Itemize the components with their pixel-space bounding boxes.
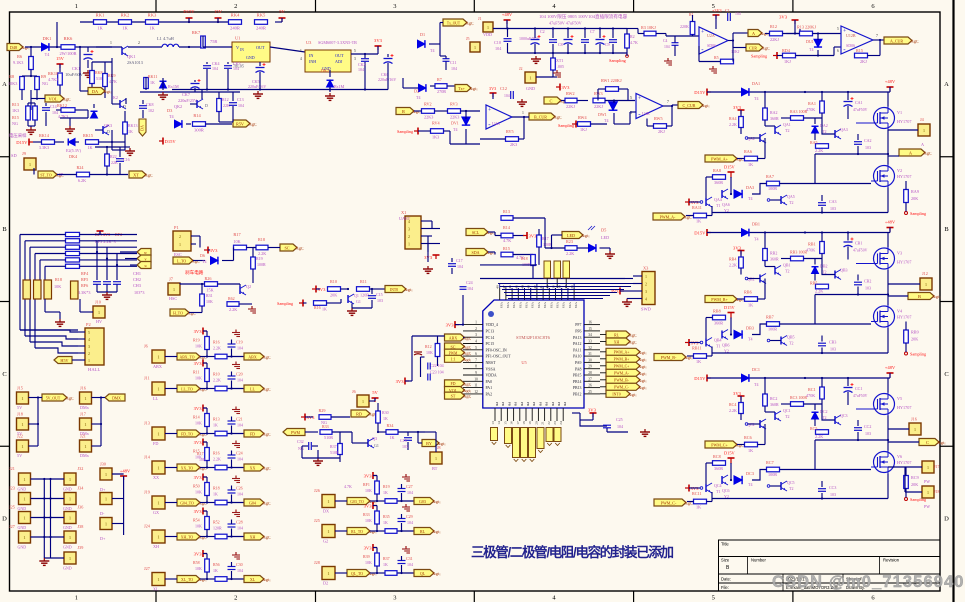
svg-text:360R: 360R [714, 466, 723, 471]
svg-text:QA3: QA3 [840, 127, 848, 132]
svg-text:8: 8 [475, 365, 477, 369]
svg-text:R14: R14 [193, 113, 201, 118]
svg-text:+48V: +48V [885, 365, 896, 370]
svg-text:3V3: 3V3 [194, 475, 203, 480]
svg-text:C16: C16 [123, 157, 130, 162]
svg-text:1: 1 [69, 516, 71, 521]
svg-text:1: 1 [157, 432, 159, 437]
svg-text:T2: T2 [785, 414, 789, 419]
svg-text:J1: J1 [478, 16, 482, 21]
svg-text:J36: J36 [78, 505, 84, 510]
svg-text:5V_OUT: 5V_OUT [46, 396, 61, 400]
svg-text:RB1: RB1 [808, 242, 816, 247]
svg-text:RB9: RB9 [911, 330, 919, 335]
svg-text:5: 5 [630, 96, 632, 100]
svg-text:3.3K*3: 3.3K*3 [78, 290, 90, 295]
svg-text:5V: 5V [372, 390, 378, 395]
svg-text:VSS: VSS [543, 302, 547, 308]
svg-text:&gt;: &gt; [910, 39, 918, 44]
svg-text:3V3: 3V3 [733, 391, 742, 396]
svg-text:&gt;: &gt; [932, 294, 940, 299]
svg-text:2.2K: 2.2K [229, 307, 237, 312]
svg-text:Sampling: Sampling [609, 58, 627, 63]
svg-text:1: 1 [105, 472, 107, 477]
svg-text:360R: 360R [714, 321, 723, 326]
svg-text:4.7K: 4.7K [630, 40, 638, 45]
svg-text:LL: LL [153, 396, 159, 401]
svg-text:RB3 100R: RB3 100R [790, 250, 807, 255]
svg-text:J25: J25 [9, 505, 15, 510]
svg-text:R16: R16 [314, 305, 321, 310]
svg-text:D+: D+ [100, 487, 106, 492]
svg-text:XT: XT [133, 172, 139, 177]
svg-text:VSS: VSS [525, 302, 529, 308]
svg-text:&gt;: &gt; [144, 173, 152, 178]
svg-text:VSS: VSS [512, 302, 516, 308]
svg-text:10K: 10K [195, 490, 202, 495]
svg-text:5: 5 [712, 595, 715, 602]
svg-text:2: 2 [179, 234, 181, 239]
svg-text:R30: R30 [382, 410, 389, 415]
svg-text:INT0: INT0 [390, 288, 398, 292]
svg-text:1K: 1K [748, 162, 753, 167]
svg-text:RD: RD [356, 411, 362, 416]
svg-text:J18: J18 [934, 489, 940, 494]
svg-text:V5: V5 [897, 396, 902, 401]
svg-text:G1: G1 [356, 299, 361, 304]
svg-text:RF4: RF4 [81, 271, 89, 276]
svg-text:12: 12 [474, 390, 478, 394]
svg-text:DB2: DB2 [820, 264, 828, 269]
svg-text:D15V: D15V [724, 450, 736, 455]
svg-text:C15: C15 [376, 292, 383, 297]
svg-text:22K3: 22K3 [450, 115, 459, 120]
svg-text:R8: R8 [9, 74, 15, 79]
svg-text:7: 7 [475, 358, 477, 362]
svg-text:1: 1 [529, 76, 531, 81]
svg-text:4: 4 [645, 297, 647, 302]
svg-text:C17: C17 [456, 258, 463, 263]
svg-text:1: 1 [84, 422, 86, 427]
svg-text:3: 3 [408, 227, 410, 232]
svg-text:3: 3 [393, 595, 396, 602]
svg-text:470K: 470K [806, 107, 815, 112]
svg-text:J16: J16 [80, 386, 86, 391]
svg-text:RK11: RK11 [148, 74, 157, 79]
svg-text:QA1: QA1 [783, 122, 791, 127]
svg-text:BY: BY [426, 441, 432, 446]
svg-text:104: 104 [237, 568, 243, 573]
svg-text:C10: C10 [494, 40, 501, 45]
svg-text:P2: P2 [86, 322, 91, 327]
svg-text:X1: X1 [401, 210, 406, 215]
svg-text:J23: J23 [9, 486, 15, 491]
svg-text:J14: J14 [144, 455, 151, 460]
svg-text:2.2K: 2.2K [815, 434, 823, 439]
svg-text:1: 1 [84, 396, 86, 401]
svg-text:VSS: VSS [537, 302, 541, 308]
svg-text:PB: PB [514, 402, 518, 407]
svg-text:1K: 1K [213, 492, 218, 497]
svg-text:RL: RL [614, 333, 620, 337]
svg-text:+48V: +48V [502, 12, 513, 17]
svg-text:RB4: RB4 [729, 257, 736, 262]
svg-text:&gt;: &gt; [432, 499, 440, 504]
svg-text:&gt;: &gt; [432, 571, 440, 576]
svg-text:C: C [550, 98, 553, 103]
svg-text:1: 1 [157, 535, 159, 540]
svg-text:G04: G04 [249, 500, 256, 505]
svg-text:104: 104 [237, 423, 243, 428]
svg-text:2.2K: 2.2K [213, 457, 221, 462]
svg-text:10K: 10K [195, 344, 202, 349]
svg-text:2.2K: 2.2K [213, 346, 221, 351]
svg-text:R29: R29 [319, 408, 326, 413]
svg-text:PB: PB [501, 402, 505, 407]
svg-text:RA5: RA5 [810, 140, 818, 145]
svg-text:C2: C2 [540, 29, 545, 34]
svg-text:20K: 20K [911, 337, 918, 342]
svg-text:103: 103 [865, 145, 871, 150]
svg-text:XX_TO: XX_TO [181, 466, 194, 470]
svg-text:300R: 300R [194, 128, 204, 133]
svg-text:VDDA: VDDA [486, 374, 497, 378]
svg-text:1K: 1K [696, 505, 701, 510]
svg-text:1: 1 [23, 497, 25, 502]
svg-text:2: 2 [408, 234, 410, 239]
svg-text:GND: GND [246, 55, 255, 60]
svg-text:RV2: RV2 [424, 102, 432, 107]
svg-text:1: 1 [927, 465, 929, 470]
svg-text:GND: GND [18, 506, 27, 511]
svg-text:2.2K: 2.2K [213, 378, 221, 383]
svg-text:104: 104 [664, 45, 670, 49]
svg-text:C20: C20 [236, 372, 243, 377]
svg-text:C24: C24 [466, 280, 473, 285]
svg-text:D48: D48 [10, 45, 17, 50]
svg-text:R10: R10 [213, 372, 220, 377]
svg-text:J25: J25 [314, 518, 320, 523]
svg-text:PA11: PA11 [573, 348, 581, 352]
svg-text:J16: J16 [911, 417, 917, 422]
svg-text:28: 28 [588, 371, 592, 375]
svg-text:U3: U3 [306, 40, 312, 45]
svg-text:T1: T1 [716, 489, 720, 494]
svg-text:u: u [145, 263, 147, 268]
svg-text:VDD: VDD [483, 32, 492, 37]
svg-text:5: 5 [354, 49, 356, 53]
svg-text:3V3: 3V3 [364, 474, 373, 479]
svg-text:24: 24 [559, 421, 563, 425]
svg-text:R12: R12 [425, 344, 432, 349]
svg-text:C8: C8 [558, 42, 563, 47]
svg-text:16: 16 [588, 321, 592, 325]
svg-text:R5V: R5V [236, 121, 244, 126]
svg-text:3V3: 3V3 [733, 246, 742, 251]
svg-text:R15: R15 [503, 246, 510, 251]
svg-text:1: 1 [475, 321, 477, 325]
svg-text:PWM_A-: PWM_A- [614, 372, 630, 376]
svg-text:&gt;: &gt; [463, 357, 471, 362]
svg-text:3V3: 3V3 [194, 361, 203, 366]
svg-text:J2: J2 [519, 66, 523, 71]
svg-text:15: 15 [503, 421, 507, 425]
svg-text:1K: 1K [389, 435, 394, 440]
svg-text:T4: T4 [748, 337, 752, 342]
svg-text:SCL: SCL [472, 230, 480, 235]
svg-text:RA2: RA2 [770, 110, 778, 115]
svg-text:1: 1 [522, 111, 524, 115]
svg-text:PA2: PA2 [486, 393, 493, 397]
svg-text:R16: R16 [213, 340, 220, 345]
svg-text:360R: 360R [714, 180, 723, 185]
svg-text:Title: Title [721, 542, 729, 547]
svg-text:104: 104 [457, 264, 463, 269]
svg-text:1: 1 [487, 25, 489, 30]
svg-text:FD: FD [153, 441, 158, 446]
svg-text:T2: T2 [822, 415, 826, 420]
svg-text:R18: R18 [521, 256, 528, 261]
svg-text:1K3: 1K3 [432, 135, 439, 140]
svg-text:22KJ: 22KJ [594, 104, 603, 109]
svg-text:R37: R37 [330, 444, 337, 449]
svg-text:220uF/16V: 220uF/16V [248, 84, 266, 89]
svg-text:V3: V3 [897, 251, 902, 256]
svg-text:R54: R54 [193, 518, 200, 523]
svg-text:10K: 10K [195, 376, 202, 381]
svg-text:D2: D2 [323, 581, 328, 586]
svg-text:PB: PB [557, 402, 561, 407]
svg-text:2KJ: 2KJ [658, 129, 665, 134]
svg-text:4.7K: 4.7K [109, 79, 117, 84]
svg-text:T2: T2 [785, 128, 789, 133]
svg-text:CC2: CC2 [864, 424, 871, 429]
svg-text:23: 23 [553, 421, 557, 425]
svg-text:3V3: 3V3 [489, 86, 496, 91]
svg-text:RW1 220KJ: RW1 220KJ [601, 78, 622, 83]
svg-text:1: 1 [157, 355, 159, 360]
svg-text:PC13: PC13 [486, 330, 495, 334]
svg-text:1: 1 [84, 444, 86, 449]
svg-text:34: 34 [588, 333, 592, 337]
svg-text:&gt;: &gt; [469, 86, 477, 91]
svg-text:32: 32 [588, 346, 592, 350]
svg-text:J21: J21 [80, 434, 86, 439]
svg-text:6.2K: 6.2K [78, 178, 86, 183]
svg-text:RC5: RC5 [810, 426, 817, 431]
svg-text:1KJ: 1KJ [580, 127, 587, 132]
svg-text:R19: R19 [383, 484, 390, 489]
svg-text:&gt;: &gt; [628, 392, 636, 397]
svg-text:R62: R62 [228, 296, 235, 301]
svg-text:9: 9 [475, 371, 477, 375]
svg-text:1: 1 [157, 577, 159, 582]
svg-text:1: 1 [21, 444, 23, 449]
svg-text:GND: GND [526, 86, 535, 91]
svg-text:1K: 1K [748, 448, 753, 453]
svg-text:PA13: PA13 [573, 336, 582, 340]
svg-text:104: 104 [735, 12, 741, 16]
svg-text:1K: 1K [150, 80, 155, 85]
svg-text:XL: XL [250, 577, 256, 582]
svg-text:1: 1 [21, 396, 23, 401]
svg-text:10K: 10K [233, 239, 240, 244]
svg-text:1: 1 [474, 45, 476, 50]
svg-text:470K: 470K [806, 393, 815, 398]
svg-text:A: A [944, 81, 949, 88]
svg-text:104: 104 [237, 457, 243, 462]
svg-text:PB: PB [532, 402, 536, 407]
svg-text:PWM_C-: PWM_C- [614, 386, 630, 390]
svg-text:T4: T4 [748, 196, 752, 201]
svg-text:CA2: CA2 [864, 138, 872, 143]
svg-text:PWM_B+: PWM_B+ [614, 358, 630, 362]
svg-text:D15V: D15V [183, 9, 195, 14]
svg-text:1: 1 [110, 41, 112, 45]
svg-text:3.3K3: 3.3K3 [39, 145, 49, 150]
svg-text:5V: 5V [17, 405, 22, 410]
svg-text:104: 104 [358, 67, 364, 72]
svg-text:RF1: RF1 [363, 482, 370, 487]
svg-text:DA1: DA1 [752, 81, 760, 86]
svg-text:R17: R17 [197, 451, 204, 456]
svg-text:A: A [921, 142, 924, 147]
svg-text:A_CUR: A_CUR [890, 38, 903, 43]
svg-text:&gt;: &gt; [638, 357, 646, 362]
svg-text:10K: 10K [199, 457, 206, 462]
svg-text:103: 103 [377, 298, 383, 303]
svg-text:XH_TO: XH_TO [181, 535, 194, 539]
svg-text:ESC: ESC [174, 252, 182, 257]
svg-text:INH: INH [309, 59, 316, 64]
svg-text:2SA1013: 2SA1013 [127, 60, 143, 65]
svg-text:103*3: 103*3 [134, 290, 144, 295]
svg-text:CH1: CH1 [133, 271, 141, 276]
svg-text:LED: LED [567, 233, 575, 238]
svg-text:J38: J38 [78, 524, 84, 529]
svg-text:T4: T4 [416, 95, 420, 100]
svg-text:R19: R19 [256, 256, 263, 261]
svg-text:PF6: PF6 [575, 330, 581, 334]
svg-text:1:1: 1:1 [450, 357, 455, 362]
svg-text:J6: J6 [144, 344, 148, 349]
svg-text:RC1: RC1 [808, 387, 816, 392]
svg-text:&gt;: &gt; [262, 466, 270, 471]
svg-text:13: 13 [491, 421, 495, 425]
svg-text:J30: J30 [100, 462, 106, 467]
svg-text:QK2: QK2 [174, 104, 182, 109]
svg-text:J12: J12 [922, 271, 928, 276]
svg-text:&gt;: &gt; [553, 115, 561, 120]
svg-text:PB: PB [526, 402, 530, 407]
svg-text:PB: PB [507, 402, 511, 407]
svg-text:FD: FD [250, 431, 255, 436]
svg-text:SD06: SD06 [846, 43, 855, 48]
svg-text:PF7: PF7 [575, 323, 581, 327]
svg-text:+48V: +48V [120, 469, 131, 474]
svg-text:NG: NG [298, 446, 304, 451]
svg-text:Sampling: Sampling [910, 211, 927, 216]
svg-text:104: 104 [467, 286, 473, 291]
svg-text:1K: 1K [383, 562, 388, 567]
svg-text:22K: 22K [223, 103, 230, 108]
svg-text:HY1707: HY1707 [897, 315, 911, 320]
svg-text:1: 1 [69, 477, 71, 482]
svg-text:C23 104: C23 104 [430, 370, 444, 375]
svg-text:LL: LL [250, 386, 255, 391]
svg-text:&gt;: &gt; [463, 381, 471, 386]
svg-text:DB3: DB3 [746, 326, 754, 331]
svg-text:22: 22 [547, 421, 551, 425]
svg-text:360R: 360R [770, 402, 779, 407]
svg-text:3V3: 3V3 [446, 323, 455, 328]
svg-text:7: 7 [667, 100, 669, 104]
svg-text:RD4: RD4 [782, 48, 791, 53]
svg-text:J11: J11 [144, 376, 150, 381]
svg-text:V2: V2 [897, 168, 902, 173]
svg-text:1: 1 [925, 282, 927, 287]
svg-text:RW2: RW2 [566, 91, 575, 96]
svg-text:J18: J18 [17, 412, 23, 417]
svg-text:RC6: RC6 [744, 435, 752, 440]
svg-text:30: 30 [588, 358, 592, 362]
svg-text:1: 1 [362, 399, 364, 404]
svg-text:R11: R11 [193, 370, 200, 375]
svg-text:T4: T4 [754, 96, 758, 101]
svg-text:T4: T4 [202, 259, 206, 264]
svg-text:1: 1 [300, 49, 302, 53]
svg-text:2.2K: 2.2K [729, 408, 737, 413]
svg-text:220K: 220K [680, 24, 689, 29]
svg-text:Tx+: Tx+ [458, 86, 465, 91]
svg-text:RA8: RA8 [713, 168, 721, 173]
svg-text:HY1707: HY1707 [897, 174, 911, 179]
svg-text:P1: P1 [174, 225, 179, 230]
svg-text:D: D [123, 104, 126, 109]
svg-text:10K: 10K [365, 488, 372, 493]
svg-text:D15V: D15V [16, 140, 28, 145]
svg-text:9.1K3: 9.1K3 [13, 60, 23, 65]
svg-text:26: 26 [588, 384, 592, 388]
svg-text:&gt;: &gt; [432, 529, 440, 534]
svg-text:RK13: RK13 [128, 123, 138, 128]
svg-text:J6: J6 [352, 389, 356, 394]
svg-text:&gt;: &gt; [262, 355, 270, 360]
svg-text:CB3: CB3 [829, 340, 836, 345]
svg-text:1: 1 [408, 242, 410, 247]
svg-text:J10: J10 [95, 300, 101, 305]
svg-text:GND: GND [63, 566, 72, 571]
svg-text:6: 6 [837, 49, 839, 53]
svg-text:2: 2 [475, 327, 477, 331]
svg-text:A: A [2, 81, 7, 88]
svg-text:PB12: PB12 [573, 393, 582, 397]
svg-text:360R: 360R [770, 116, 779, 121]
svg-text:10K: 10K [206, 299, 213, 304]
svg-text:RK1: RK1 [96, 13, 105, 18]
svg-text:OUT: OUT [256, 45, 265, 50]
svg-text:GND: GND [18, 487, 27, 492]
svg-text:75R: 75R [210, 39, 217, 44]
svg-text:DC2: DC2 [820, 409, 828, 414]
svg-text:RB11: RB11 [692, 346, 702, 351]
svg-text:U4A: U4A [492, 121, 500, 126]
svg-text:&gt;: &gt; [463, 388, 471, 393]
svg-text:1: 1 [21, 422, 23, 427]
svg-text:1K: 1K [696, 359, 701, 364]
svg-text:15: 15 [588, 327, 592, 331]
svg-text:R12: R12 [222, 97, 229, 102]
